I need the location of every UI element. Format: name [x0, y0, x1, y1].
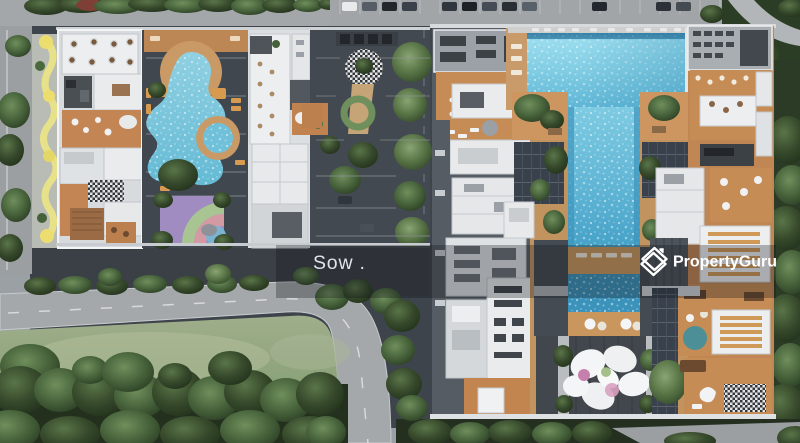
svg-text:Sow .: Sow .: [313, 252, 366, 274]
svg-text:PropertyGuru: PropertyGuru: [673, 254, 777, 271]
